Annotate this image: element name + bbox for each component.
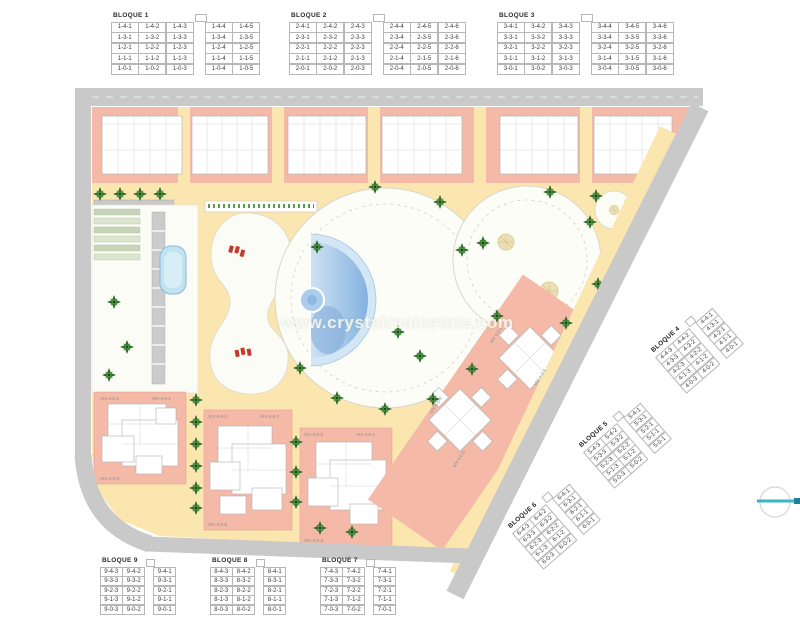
unit-cell: 2-2-5 [410, 43, 438, 54]
block-title: BLOQUE 7 [322, 557, 396, 564]
unit-cell: 2-2-1 [289, 43, 317, 54]
table-gap [193, 43, 205, 54]
garden-area [92, 205, 198, 393]
table-gap [579, 53, 591, 64]
table-gap [579, 22, 591, 33]
unit-cell: 3-1-5 [618, 53, 646, 64]
viv-label: VIV 4-0-1 [152, 396, 172, 401]
unit-cell: 2-3-4 [383, 32, 411, 43]
unit-cell: 9-2-3 [100, 586, 123, 596]
rowhouse-block-2a [288, 116, 366, 174]
unit-cell: 8-3-1 [263, 576, 286, 586]
unit-cell: 3-0-2 [524, 64, 552, 75]
unit-cell: 9-4-2 [122, 567, 145, 577]
site-plan-sheet: VIV 4-0-2 VIV 4-0-1 VIV 4-0-3 VIV 4-0-2 … [0, 0, 800, 640]
unit-cell: 2-0-3 [344, 64, 372, 75]
unit-cell: 2-0-4 [383, 64, 411, 75]
unit-cell: 2-0-2 [316, 64, 344, 75]
unit-cell: 3-0-3 [552, 64, 580, 75]
unit-cell: 2-4-5 [410, 22, 438, 33]
roof-access-box [373, 14, 385, 22]
unit-cell: 7-3-1 [373, 576, 396, 586]
unit-cell: 2-4-3 [344, 22, 372, 33]
viv-label: VIV 4-0-3 [304, 538, 324, 543]
unit-cell: 8-2-3 [210, 586, 233, 596]
unit-cell: 3-2-3 [552, 43, 580, 54]
unit-cell: 2-2-3 [344, 43, 372, 54]
viv-label: VIV 4-0-2 [100, 396, 120, 401]
unit-cell: 3-3-1 [497, 32, 525, 43]
unit-cell: 9-1-2 [122, 595, 145, 605]
unit-cell: 1-3-3 [166, 32, 194, 43]
unit-cell: 7-3-2 [342, 576, 365, 586]
unit-cell: 9-4-3 [100, 567, 123, 577]
unit-cell: 3-4-4 [591, 22, 619, 33]
bloque-3-table: BLOQUE 33-4-13-4-23-4-33-4-43-4-53-4-63-… [497, 12, 674, 75]
rowhouse-block-1a [102, 116, 182, 174]
unit-cell: 1-2-5 [232, 43, 260, 54]
unit-cell: 3-1-6 [646, 53, 674, 64]
planter-icon [498, 234, 514, 250]
unit-cell: 3-2-5 [618, 43, 646, 54]
table-gap [371, 43, 383, 54]
unit-cell: 2-3-1 [289, 32, 317, 43]
unit-cell: 1-2-3 [166, 43, 194, 54]
unit-cell: 3-3-3 [552, 32, 580, 43]
unit-cell: 9-3-3 [100, 576, 123, 586]
unit-cell: 8-0-1 [263, 605, 286, 615]
unit-cell: 3-4-1 [497, 22, 525, 33]
pergola-garden [152, 212, 165, 384]
unit-cell: 2-3-6 [438, 32, 466, 43]
roof-access-box [581, 14, 593, 22]
unit-cell: 8-1-2 [232, 595, 255, 605]
table-gap [579, 32, 591, 43]
bloque-9-table: BLOQUE 99-4-39-4-29-4-19-3-39-3-29-3-19-… [100, 557, 176, 615]
unit-cell: 8-2-1 [263, 586, 286, 596]
rowhouse-block-1b [192, 116, 268, 174]
unit-cell: 2-4-6 [438, 22, 466, 33]
unit-cell: 9-1-1 [153, 595, 176, 605]
viv-label: VIV 4-0-5 [208, 522, 228, 527]
roof-access-box [146, 559, 155, 567]
unit-cell: 7-4-2 [342, 567, 365, 577]
unit-cell: 9-2-2 [122, 586, 145, 596]
unit-cell: 8-3-2 [232, 576, 255, 586]
block-title: BLOQUE 1 [113, 12, 260, 19]
unit-cell: 9-2-1 [153, 586, 176, 596]
unit-cell: 3-0-6 [646, 64, 674, 75]
table-gap [371, 64, 383, 75]
unit-cell: 1-4-5 [232, 22, 260, 33]
unit-cell: 9-0-2 [122, 605, 145, 615]
unit-cell: 1-0-1 [111, 64, 139, 75]
unit-cell: 9-0-3 [100, 605, 123, 615]
viv-label: VIV 4-0-1 [260, 414, 280, 419]
unit-cell: 2-4-2 [316, 22, 344, 33]
small-pool-inner [164, 252, 182, 288]
unit-cell: 8-4-2 [232, 567, 255, 577]
unit-cell: 1-0-3 [166, 64, 194, 75]
unit-cell: 1-1-2 [138, 53, 166, 64]
unit-cell: 7-0-1 [373, 605, 396, 615]
site-plan: VIV 4-0-2 VIV 4-0-1 VIV 4-0-3 VIV 4-0-2 … [0, 0, 800, 640]
unit-cell: 3-4-2 [524, 22, 552, 33]
table-gap [193, 32, 205, 43]
unit-cell: 7-2-3 [320, 586, 343, 596]
rowhouse-block-3a [500, 116, 578, 174]
unit-cell: 8-1-3 [210, 595, 233, 605]
unit-cell: 7-2-1 [373, 586, 396, 596]
unit-cell: 7-1-1 [373, 595, 396, 605]
bloque-8-table: BLOQUE 88-4-38-4-28-4-18-3-38-3-28-3-18-… [210, 557, 286, 615]
unit-cell: 2-0-1 [289, 64, 317, 75]
block-title: BLOQUE 9 [102, 557, 176, 564]
unit-cell: 3-1-3 [552, 53, 580, 64]
unit-cell: 1-3-5 [232, 32, 260, 43]
block-title: BLOQUE 8 [212, 557, 286, 564]
unit-cell: 8-0-3 [210, 605, 233, 615]
unit-cell: 1-1-3 [166, 53, 194, 64]
unit-cell: 1-1-5 [232, 53, 260, 64]
unit-cell: 7-4-3 [320, 567, 343, 577]
table-gap [371, 32, 383, 43]
unit-cell: 1-4-1 [111, 22, 139, 33]
unit-cell: 2-3-5 [410, 32, 438, 43]
unit-cell: 3-1-2 [524, 53, 552, 64]
unit-cell: 2-2-4 [383, 43, 411, 54]
rowhouse-block-2b [382, 116, 462, 174]
table-gap [579, 43, 591, 54]
unit-cell: 3-2-2 [524, 43, 552, 54]
vine-pergola [205, 201, 317, 212]
unit-cell: 1-0-2 [138, 64, 166, 75]
unit-cell: 7-1-2 [342, 595, 365, 605]
unit-cell: 7-4-1 [373, 567, 396, 577]
unit-cell: 3-2-6 [646, 43, 674, 54]
unit-cell: 7-1-3 [320, 595, 343, 605]
unit-cell: 3-3-2 [524, 32, 552, 43]
road-left [75, 88, 91, 460]
unit-cell: 2-1-3 [344, 53, 372, 64]
table-gap [371, 22, 383, 33]
bloque-1-table: BLOQUE 11-4-11-4-21-4-31-4-41-4-51-3-11-… [111, 12, 260, 75]
unit-cell: 2-0-5 [410, 64, 438, 75]
unit-cell: 2-2-6 [438, 43, 466, 54]
unit-cell: 9-0-1 [153, 605, 176, 615]
unit-cell: 3-1-4 [591, 53, 619, 64]
table-gap [579, 64, 591, 75]
unit-cell: 1-3-2 [138, 32, 166, 43]
plot-2 [204, 410, 292, 530]
unit-cell: 2-0-6 [438, 64, 466, 75]
unit-cell: 1-4-2 [138, 22, 166, 33]
unit-cell: 2-4-4 [383, 22, 411, 33]
unit-cell: 1-2-4 [205, 43, 233, 54]
unit-cell: 7-0-2 [342, 605, 365, 615]
unit-cell: 1-2-2 [138, 43, 166, 54]
unit-cell: 3-2-1 [497, 43, 525, 54]
unit-cell: 2-2-2 [316, 43, 344, 54]
unit-cell: 8-4-1 [263, 567, 286, 577]
unit-cell: 1-4-3 [166, 22, 194, 33]
table-gap [193, 64, 205, 75]
unit-cell: 3-0-4 [591, 64, 619, 75]
viv-label: VIV 4-0-1 [356, 432, 376, 437]
unit-cell: 2-1-2 [316, 53, 344, 64]
unit-cell: 9-3-1 [153, 576, 176, 586]
table-gap [371, 53, 383, 64]
unit-cell: 8-3-3 [210, 576, 233, 586]
unit-cell: 9-1-3 [100, 595, 123, 605]
unit-cell: 1-3-1 [111, 32, 139, 43]
unit-cell: 3-0-1 [497, 64, 525, 75]
roof-access-box [366, 559, 375, 567]
unit-cell: 1-0-4 [205, 64, 233, 75]
viv-label: VIV 4-0-2 [208, 414, 228, 419]
unit-cell: 3-3-4 [591, 32, 619, 43]
unit-cell: 1-3-4 [205, 32, 233, 43]
unit-cell: 8-2-2 [232, 586, 255, 596]
unit-cell: 9-3-2 [122, 576, 145, 586]
unit-cell: 3-4-5 [618, 22, 646, 33]
unit-cell: 2-4-1 [289, 22, 317, 33]
unit-cell: 2-1-6 [438, 53, 466, 64]
viv-label: VIV 4-0-2 [304, 432, 324, 437]
unit-cell: 8-4-3 [210, 567, 233, 577]
unit-cell: 2-1-1 [289, 53, 317, 64]
viv-label: VIV 4-0-3 [100, 476, 120, 481]
unit-cell: 3-4-3 [552, 22, 580, 33]
bloque-2-table: BLOQUE 22-4-12-4-22-4-32-4-42-4-52-4-62-… [289, 12, 466, 75]
unit-cell: 2-3-3 [344, 32, 372, 43]
unit-cell: 2-1-4 [383, 53, 411, 64]
unit-cell: 1-4-4 [205, 22, 233, 33]
unit-cell: 8-0-2 [232, 605, 255, 615]
unit-cell: 3-3-5 [618, 32, 646, 43]
unit-cell: 3-2-4 [591, 43, 619, 54]
unit-cell: 1-2-1 [111, 43, 139, 54]
unit-cell: 8-1-1 [263, 595, 286, 605]
unit-cell: 1-1-4 [205, 53, 233, 64]
table-gap [193, 53, 205, 64]
unit-cell: 2-1-5 [410, 53, 438, 64]
unit-cell: 1-1-1 [111, 53, 139, 64]
unit-cell: 7-0-3 [320, 605, 343, 615]
unit-cell: 9-4-1 [153, 567, 176, 577]
roof-access-box [195, 14, 207, 22]
compass-icon [757, 487, 800, 517]
bloque-7-table: BLOQUE 77-4-37-4-27-4-17-3-37-3-27-3-17-… [320, 557, 396, 615]
plot-1 [94, 392, 186, 484]
unit-cell: 3-0-5 [618, 64, 646, 75]
roof-access-box [256, 559, 265, 567]
unit-cell: 1-0-5 [232, 64, 260, 75]
unit-cell: 7-3-3 [320, 576, 343, 586]
unit-cell: 2-3-2 [316, 32, 344, 43]
unit-cell: 3-1-1 [497, 53, 525, 64]
planter-icon [609, 205, 619, 215]
unit-cell: 3-4-6 [646, 22, 674, 33]
unit-cell: 3-3-6 [646, 32, 674, 43]
table-gap [193, 22, 205, 33]
unit-cell: 7-2-2 [342, 586, 365, 596]
